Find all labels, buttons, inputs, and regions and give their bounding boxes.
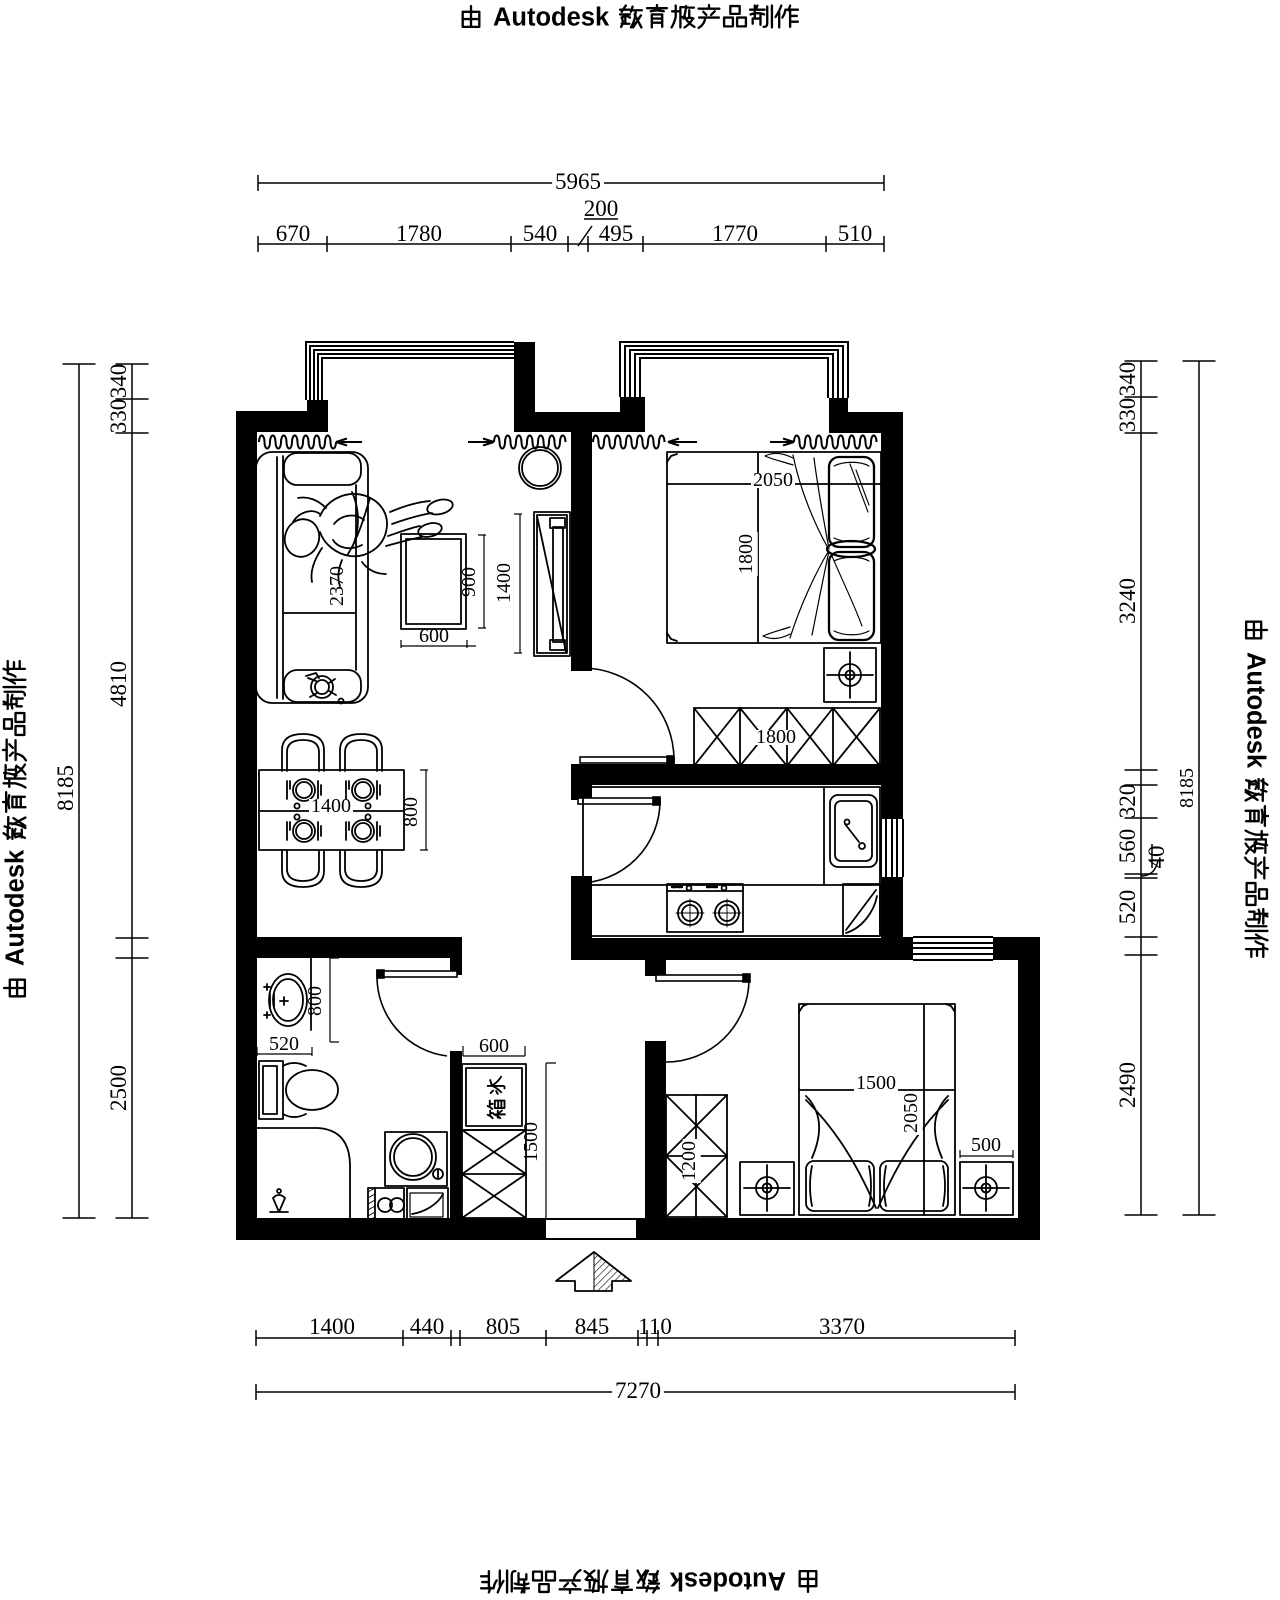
svg-text:510: 510 <box>838 221 873 246</box>
svg-text:495: 495 <box>599 221 634 246</box>
svg-text:340: 340 <box>106 364 131 399</box>
svg-text:1800: 1800 <box>756 726 796 748</box>
svg-text:520: 520 <box>269 1033 299 1055</box>
svg-text:2500: 2500 <box>106 1065 131 1111</box>
svg-text:7270: 7270 <box>615 1378 661 1403</box>
svg-text:110: 110 <box>638 1314 672 1339</box>
svg-text:1770: 1770 <box>712 221 758 246</box>
svg-text:340: 340 <box>1115 362 1140 397</box>
svg-text:1400: 1400 <box>309 1314 355 1339</box>
svg-text:1400: 1400 <box>493 563 515 603</box>
svg-text:600: 600 <box>479 1035 509 1057</box>
svg-text:800: 800 <box>400 797 422 827</box>
svg-text:330: 330 <box>106 399 131 434</box>
svg-text:560: 560 <box>1115 829 1140 864</box>
svg-text:500: 500 <box>971 1134 1001 1156</box>
svg-text:320: 320 <box>1115 784 1140 819</box>
svg-text:540: 540 <box>523 221 558 246</box>
svg-text:200: 200 <box>584 196 619 221</box>
svg-text:670: 670 <box>276 221 311 246</box>
svg-text:1400: 1400 <box>311 795 351 817</box>
svg-text:600: 600 <box>419 625 449 647</box>
svg-text:2050: 2050 <box>900 1093 922 1133</box>
svg-text:4810: 4810 <box>106 661 131 707</box>
svg-text:1800: 1800 <box>735 534 757 574</box>
svg-text:805: 805 <box>486 1314 521 1339</box>
svg-text:900: 900 <box>458 567 480 597</box>
svg-text:1500: 1500 <box>856 1072 896 1094</box>
svg-text:330: 330 <box>1115 398 1140 433</box>
svg-text:440: 440 <box>410 1314 445 1339</box>
svg-text:8185: 8185 <box>1176 768 1198 808</box>
svg-text:845: 845 <box>575 1314 610 1339</box>
svg-text:40: 40 <box>1144 846 1169 869</box>
svg-text:2490: 2490 <box>1115 1062 1140 1108</box>
svg-text:2370: 2370 <box>326 566 348 606</box>
svg-text:1780: 1780 <box>396 221 442 246</box>
svg-text:3370: 3370 <box>819 1314 865 1339</box>
svg-text:3240: 3240 <box>1115 578 1140 624</box>
svg-text:1200: 1200 <box>678 1141 700 1181</box>
svg-text:5965: 5965 <box>555 169 601 194</box>
svg-text:8185: 8185 <box>53 765 78 811</box>
svg-text:2050: 2050 <box>753 469 793 491</box>
svg-text:800: 800 <box>304 986 326 1016</box>
svg-text:520: 520 <box>1115 890 1140 925</box>
svg-text:1500: 1500 <box>520 1122 542 1162</box>
